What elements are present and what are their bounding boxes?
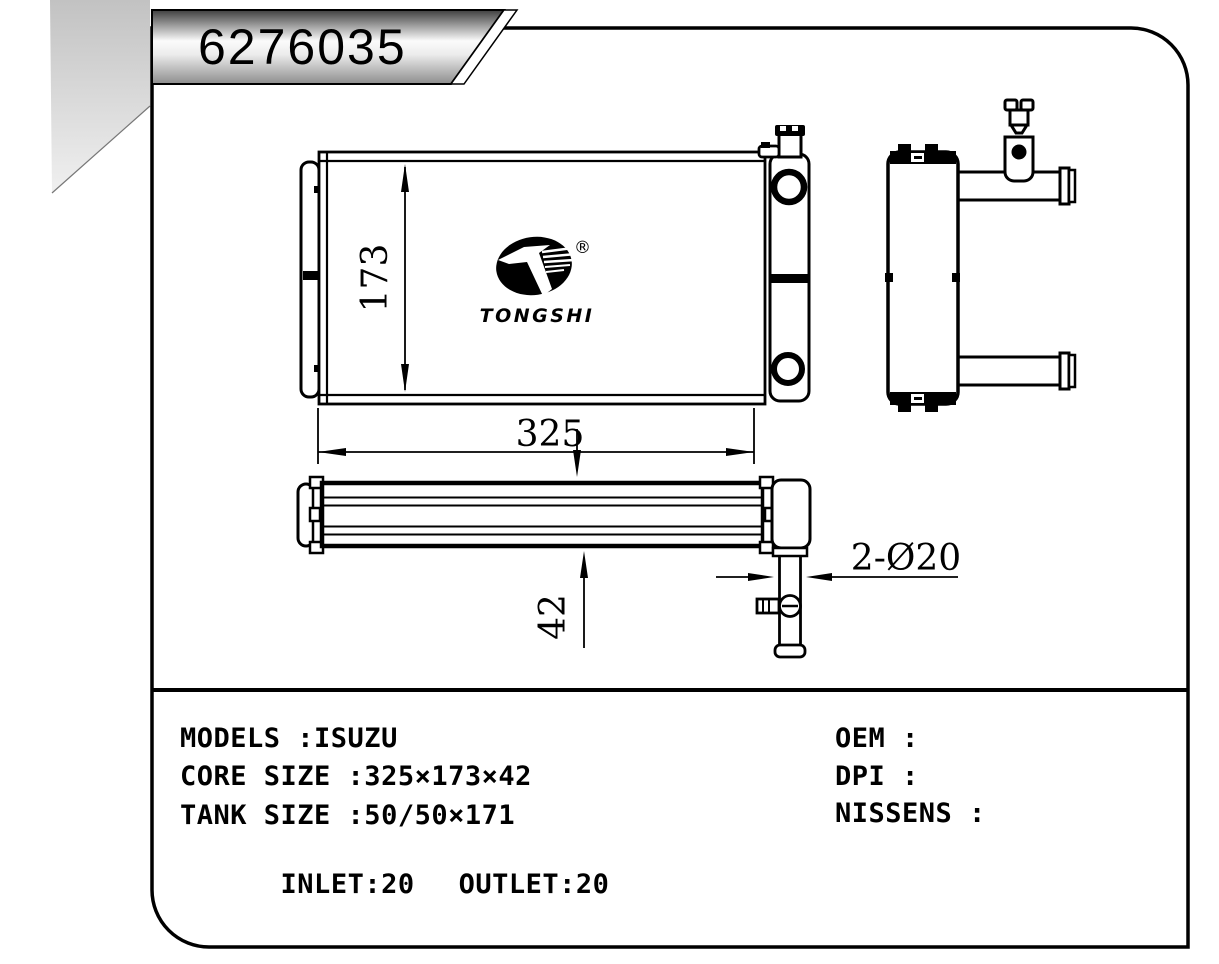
dimension-core-thickness: 42 bbox=[533, 551, 588, 648]
pipe-diameter-label: 2-Ø20 bbox=[851, 538, 961, 579]
side-view bbox=[885, 100, 1075, 412]
spec-outlet: OUTLET:20 bbox=[459, 869, 610, 900]
neck-hole bbox=[1012, 145, 1027, 160]
tank-side-body bbox=[888, 152, 958, 404]
bottom-pipe bbox=[956, 357, 1062, 385]
tank-crimp-bottom bbox=[890, 392, 956, 412]
side-plate-mark bbox=[303, 271, 320, 280]
tank-notch-right bbox=[952, 273, 960, 282]
top-view-right-tank bbox=[772, 480, 810, 548]
spec-models: MODELS :ISUZU bbox=[180, 723, 398, 754]
core-width-label: 325 bbox=[516, 414, 585, 455]
spec-oem: OEM : bbox=[835, 723, 919, 754]
spec-tank-size: TANK SIZE :50/50×171 bbox=[180, 800, 515, 831]
spec-inlet-outlet: INLET:20OUTLET:20 bbox=[180, 838, 609, 931]
tank-seam bbox=[770, 274, 809, 283]
tank-notch-left bbox=[885, 273, 893, 282]
spec-inlet: INLET:20 bbox=[281, 869, 415, 900]
drawing-page: 173 ® TONGSHI bbox=[0, 0, 1219, 964]
spec-nissens: NISSENS : bbox=[835, 798, 986, 829]
drain-plug bbox=[1005, 100, 1033, 133]
title-banner: 6276035 bbox=[152, 10, 517, 84]
core-height-label: 173 bbox=[355, 244, 396, 313]
part-number: 6276035 bbox=[198, 19, 407, 75]
filler-cap bbox=[775, 125, 805, 136]
core-band bbox=[322, 483, 763, 546]
logo-brand-text: TONGSHI bbox=[480, 305, 595, 327]
dimension-core-width: 325 bbox=[318, 408, 754, 477]
registered-trademark: ® bbox=[574, 238, 591, 258]
core-thickness-label: 42 bbox=[533, 594, 574, 640]
spec-dpi: DPI : bbox=[835, 761, 919, 792]
spec-core-size: CORE SIZE :325×173×42 bbox=[180, 761, 532, 792]
outlet-pipe bbox=[757, 548, 807, 657]
corner-decoration bbox=[50, 0, 150, 193]
tank-crimp-top bbox=[890, 144, 956, 164]
